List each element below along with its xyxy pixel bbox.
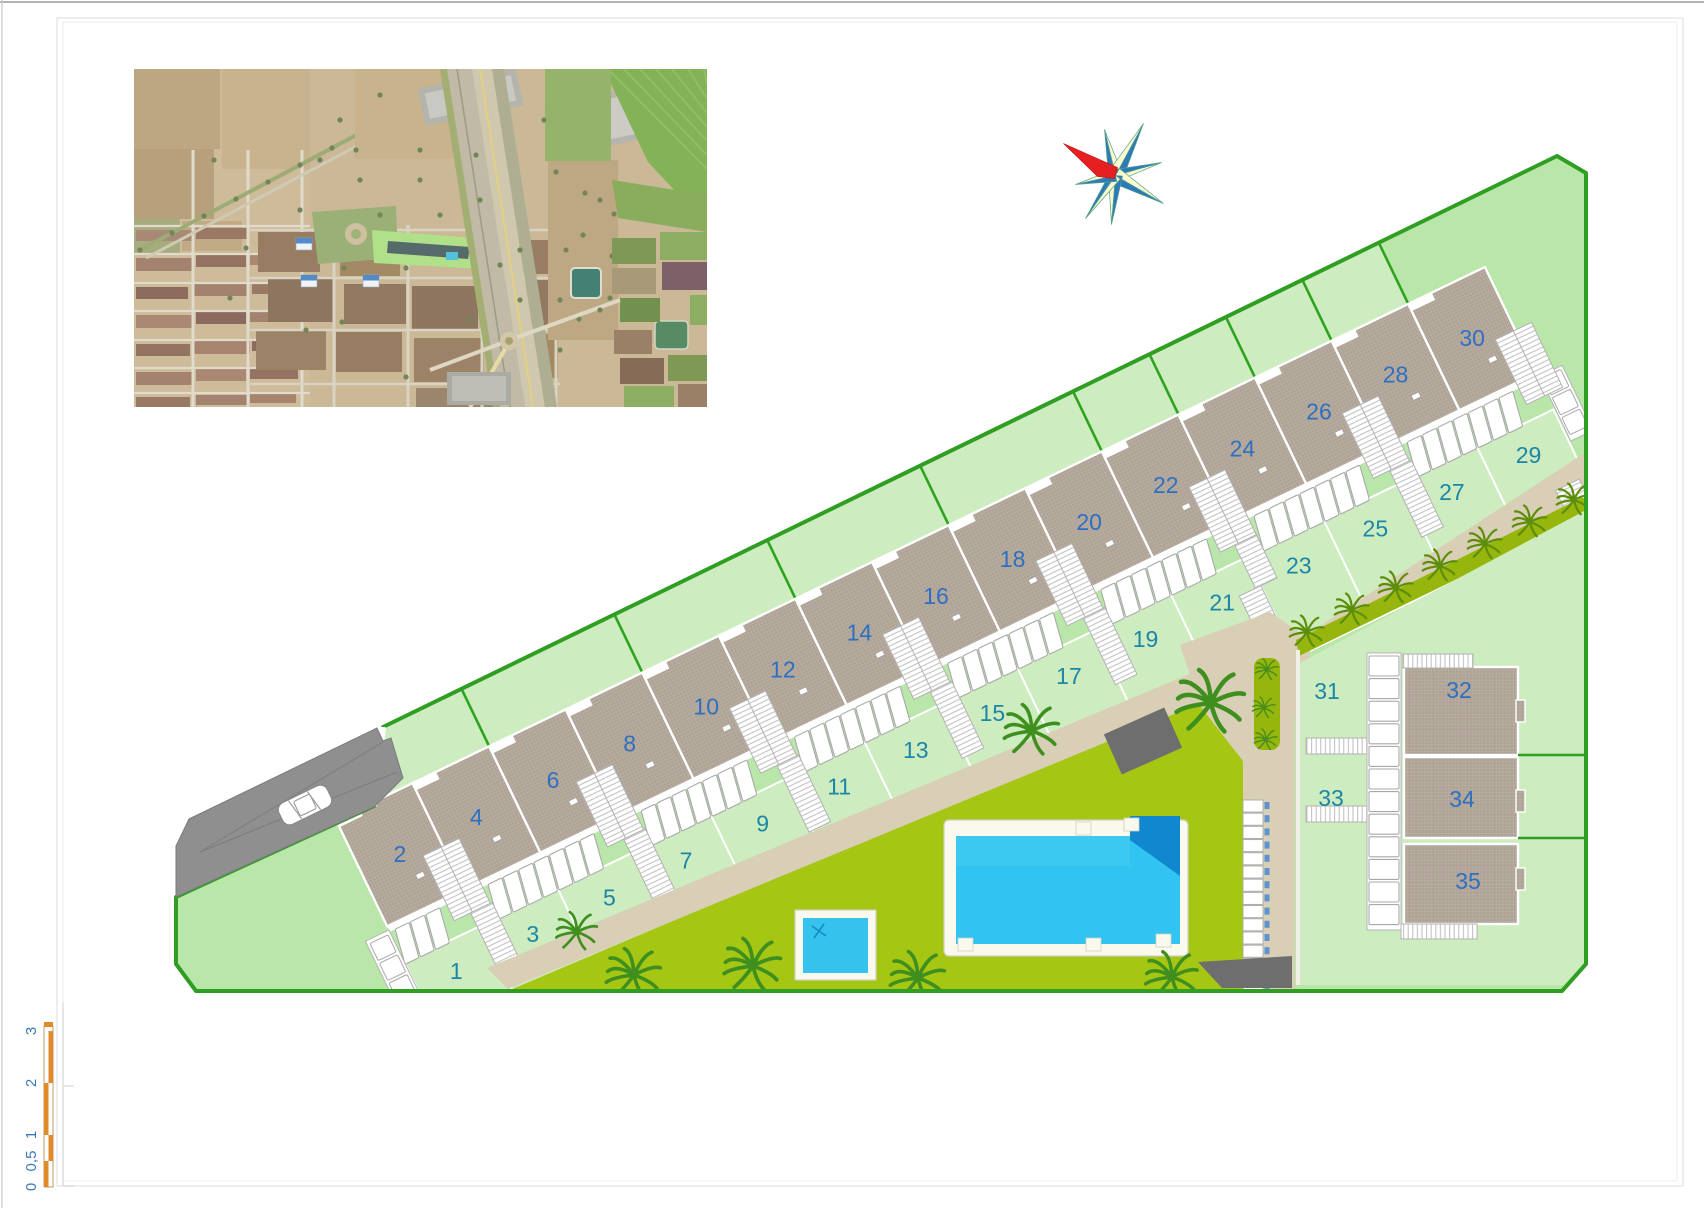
svg-text:21: 21 bbox=[1209, 589, 1235, 615]
svg-text:35: 35 bbox=[1455, 868, 1481, 894]
svg-text:19: 19 bbox=[1133, 626, 1159, 652]
svg-text:8: 8 bbox=[623, 730, 636, 756]
svg-text:3: 3 bbox=[23, 1027, 40, 1035]
svg-text:23: 23 bbox=[1286, 553, 1312, 579]
svg-text:16: 16 bbox=[923, 583, 949, 609]
svg-text:26: 26 bbox=[1306, 399, 1332, 425]
svg-text:33: 33 bbox=[1318, 785, 1344, 811]
svg-text:34: 34 bbox=[1449, 786, 1475, 812]
svg-text:31: 31 bbox=[1314, 678, 1340, 704]
svg-text:1: 1 bbox=[450, 958, 463, 984]
svg-text:29: 29 bbox=[1516, 442, 1542, 468]
svg-text:2: 2 bbox=[23, 1079, 40, 1087]
svg-text:0: 0 bbox=[23, 1183, 40, 1191]
svg-text:32: 32 bbox=[1446, 677, 1472, 703]
svg-text:22: 22 bbox=[1153, 472, 1179, 498]
svg-text:25: 25 bbox=[1363, 516, 1389, 542]
svg-text:12: 12 bbox=[770, 657, 796, 683]
svg-text:13: 13 bbox=[903, 737, 929, 763]
svg-text:1: 1 bbox=[23, 1131, 40, 1139]
svg-text:7: 7 bbox=[680, 847, 693, 873]
svg-text:5: 5 bbox=[603, 884, 616, 910]
svg-text:15: 15 bbox=[980, 700, 1006, 726]
svg-text:6: 6 bbox=[547, 767, 560, 793]
svg-text:0,5: 0,5 bbox=[23, 1151, 40, 1172]
svg-text:30: 30 bbox=[1459, 325, 1485, 351]
svg-text:28: 28 bbox=[1383, 362, 1409, 388]
svg-text:27: 27 bbox=[1439, 479, 1465, 505]
svg-text:3: 3 bbox=[526, 921, 539, 947]
svg-text:20: 20 bbox=[1076, 509, 1102, 535]
svg-text:2: 2 bbox=[393, 841, 406, 867]
svg-text:18: 18 bbox=[1000, 546, 1026, 572]
svg-text:11: 11 bbox=[827, 774, 851, 800]
svg-text:10: 10 bbox=[693, 693, 719, 719]
svg-text:9: 9 bbox=[756, 811, 769, 837]
svg-text:4: 4 bbox=[470, 804, 483, 830]
svg-text:17: 17 bbox=[1056, 663, 1082, 689]
svg-text:24: 24 bbox=[1230, 435, 1256, 461]
svg-text:14: 14 bbox=[847, 620, 873, 646]
